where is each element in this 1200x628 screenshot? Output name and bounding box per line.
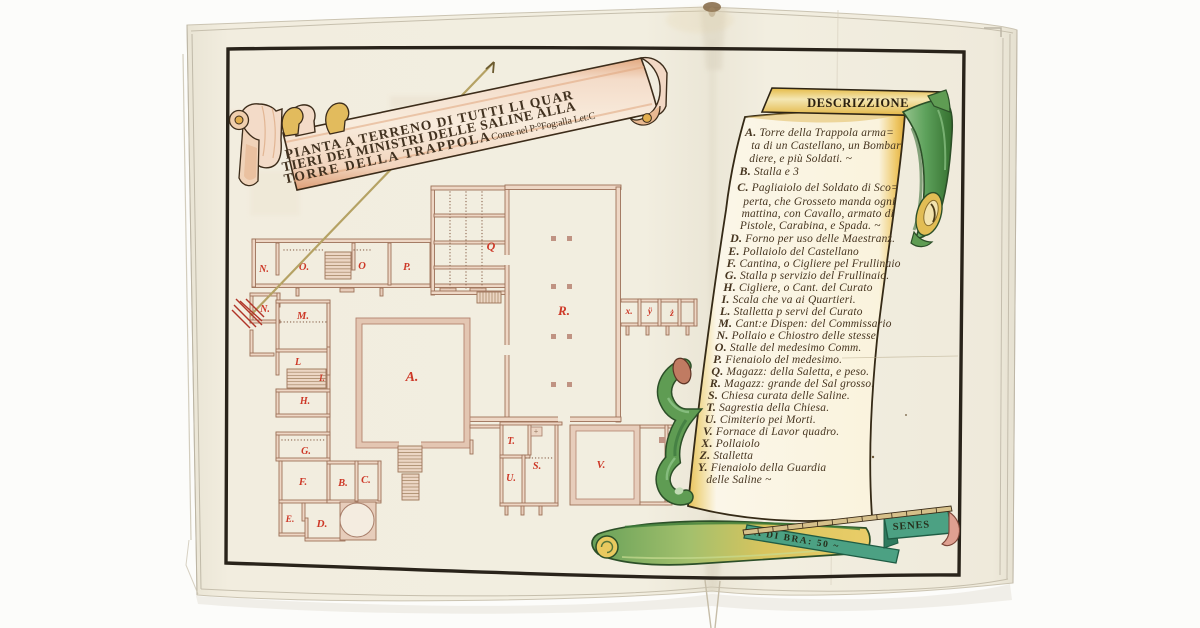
- svg-text:perta, che Grosseto manda ogni: perta, che Grosseto manda ogni: [742, 196, 895, 208]
- svg-text:diere, e più Soldati. ~: diere, e più Soldati. ~: [749, 153, 852, 165]
- svg-text:O: O: [358, 261, 366, 272]
- svg-text:G. Stalla p servizio del Frull: G. Stalla p servizio del Frullinaio.: [725, 268, 889, 282]
- svg-text:M. Cant:e Dispen: del Commissa: M. Cant:e Dispen: del Commissario: [717, 316, 892, 330]
- svg-text:N.: N.: [258, 264, 269, 275]
- svg-text:H.: H.: [299, 396, 310, 407]
- svg-text:V.: V.: [597, 459, 606, 471]
- svg-text:N. Pollaio e Chiostro delle st: N. Pollaio e Chiostro delle stesse: [716, 328, 876, 342]
- svg-text:A. Torre della Trappola arma=: A. Torre della Trappola arma=: [744, 125, 894, 139]
- svg-text:P.: P.: [403, 262, 411, 273]
- svg-text:I.: I.: [318, 373, 325, 383]
- svg-text:ż: ż: [669, 309, 674, 319]
- svg-text:C. Pagliaiolo del Soldato di S: C. Pagliaiolo del Soldato di Sco=: [737, 180, 899, 194]
- svg-text:Q. Magazz: della Saletta, e pe: Q. Magazz: della Saletta, e peso.: [711, 364, 869, 378]
- svg-text:R.: R.: [557, 303, 570, 318]
- svg-text:S.: S.: [533, 461, 541, 472]
- svg-text:P. Fienaiolo del medesimo.: P. Fienaiolo del medesimo.: [713, 352, 842, 366]
- svg-text:T. Sagrestia della Chiesa.: T. Sagrestia della Chiesa.: [706, 400, 829, 414]
- svg-text:B. Stalla e 3: B. Stalla e 3: [739, 164, 800, 178]
- svg-text:Q: Q: [487, 239, 496, 253]
- svg-text:ta di un Castellano, un Bombar: ta di un Castellano, un Bombar: [751, 140, 901, 152]
- svg-text:D.: D.: [316, 518, 328, 530]
- svg-text:L: L: [294, 357, 301, 368]
- svg-text:M.: M.: [296, 311, 309, 322]
- svg-text:U. Cimiterio pei Morti.: U. Cimiterio pei Morti.: [705, 412, 816, 426]
- svg-text:V. Fornace di Lavor quadro.: V. Fornace di Lavor quadro.: [703, 424, 839, 438]
- svg-text:S. Chiesa curata delle Saline.: S. Chiesa curata delle Saline.: [708, 388, 850, 402]
- svg-text:L. Stalletta p servi del Curat: L. Stalletta p servi del Curato: [719, 304, 863, 318]
- svg-text:O. Stalle del medesimo Comm.: O. Stalle del medesimo Comm.: [715, 340, 862, 354]
- svg-text:mattina, con Cavallo, armato d: mattina, con Cavallo, armato di: [742, 208, 894, 220]
- svg-text:DESCRIZZIONE: DESCRIZZIONE: [807, 96, 909, 110]
- svg-text:ÿ: ÿ: [647, 307, 653, 317]
- svg-text:G.: G.: [301, 446, 311, 457]
- svg-text:E.: E.: [285, 515, 295, 525]
- svg-text:Pistole, Carabina, e Spada. ~: Pistole, Carabina, e Spada. ~: [739, 220, 881, 232]
- svg-text:U.: U.: [506, 473, 516, 484]
- svg-text:B.: B.: [337, 478, 348, 489]
- svg-text:T.: T.: [507, 436, 515, 447]
- svg-text:D. Forno per uso delle Maestra: D. Forno per uso delle Maestranz.: [729, 231, 895, 245]
- svg-text:H. Cigliere, o Cant. del Curat: H. Cigliere, o Cant. del Curato: [722, 280, 873, 294]
- svg-text:+: +: [534, 427, 539, 436]
- svg-text:I. Scala che va ai Quartieri.: I. Scala che va ai Quartieri.: [721, 292, 856, 306]
- svg-text:Y. Fienaiolo della Guardia: Y. Fienaiolo della Guardia: [698, 460, 827, 474]
- svg-text:x.: x.: [624, 307, 632, 317]
- svg-text:delle Saline ~: delle Saline ~: [706, 474, 771, 486]
- svg-text:E. Pollaiolo del Castellano: E. Pollaiolo del Castellano: [727, 244, 859, 258]
- svg-text:C.: C.: [361, 475, 371, 486]
- svg-text:F.: F.: [298, 477, 307, 488]
- svg-text:F. Cantina, o Cigliere pel Fru: F. Cantina, o Cigliere pel Frullinaio: [726, 256, 901, 270]
- svg-text:A.: A.: [405, 370, 419, 385]
- svg-text:R. Magazz: grande del Sal gros: R. Magazz: grande del Sal grosso.: [709, 376, 875, 390]
